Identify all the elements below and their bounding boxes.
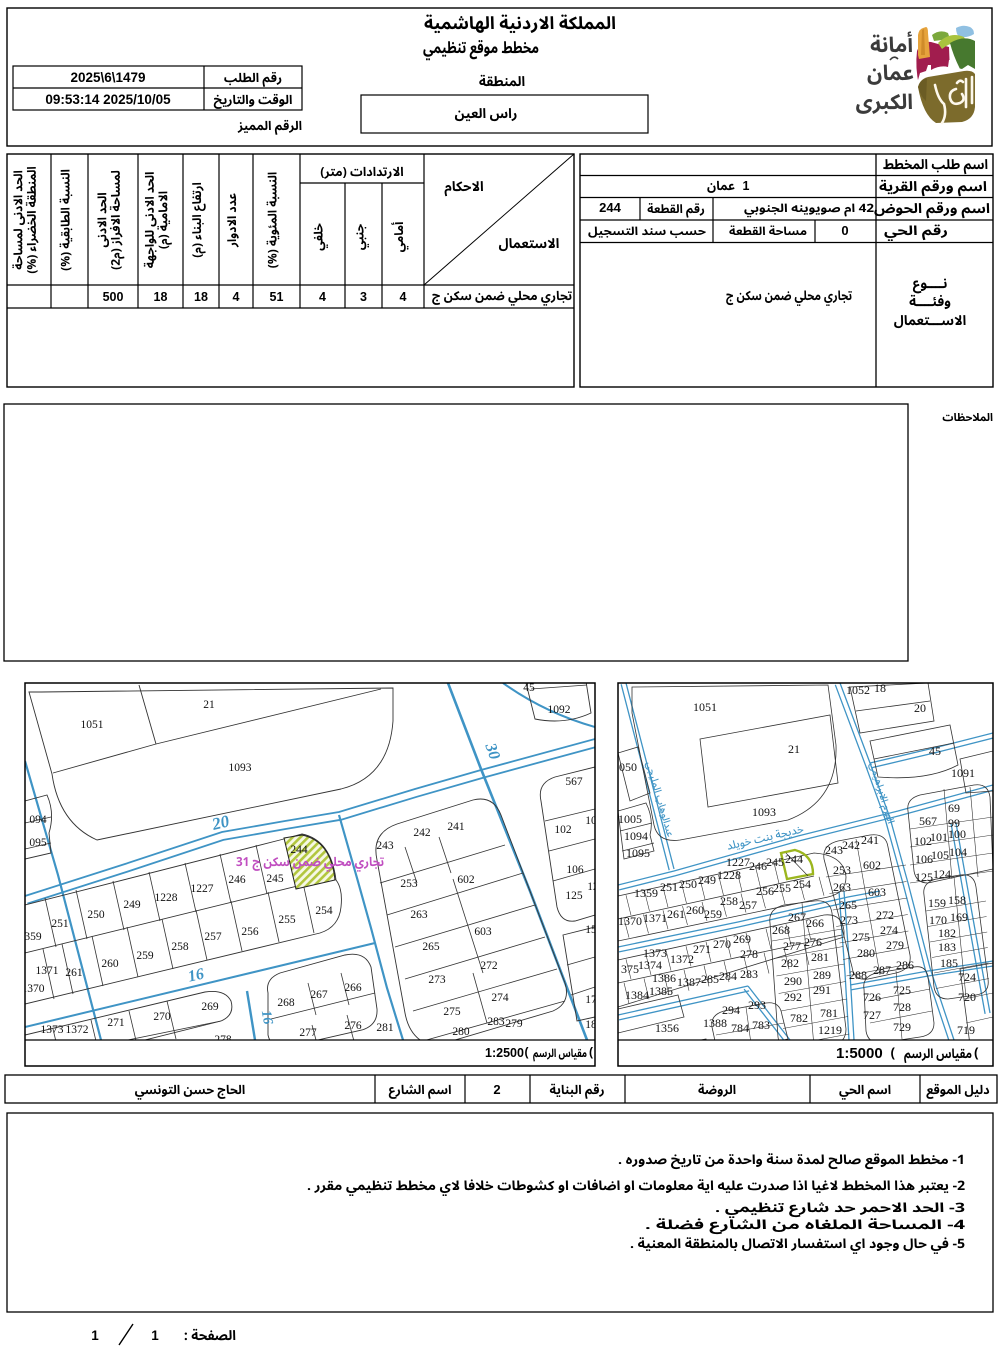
svg-text:3: 3 [360,290,367,304]
svg-text:276: 276 [344,1020,362,1032]
svg-text:265: 265 [422,941,440,953]
svg-text:1386: 1386 [652,971,676,985]
svg-text:242: 242 [842,838,860,852]
svg-text:285: 285 [701,972,719,986]
svg-text:277: 277 [783,939,801,953]
svg-text:4: 4 [400,290,407,304]
svg-text:250: 250 [87,909,105,921]
svg-text:781: 781 [820,1006,838,1020]
svg-text:287: 287 [873,963,891,977]
svg-text:159: 159 [928,896,946,910]
svg-text:243: 243 [376,840,394,852]
svg-text:(: ( [525,1045,529,1059]
svg-text:275: 275 [852,930,870,944]
svg-text:(: ( [891,1045,896,1060]
svg-text:244: 244 [290,844,308,856]
svg-text:263: 263 [833,880,851,894]
svg-text:288: 288 [849,968,867,982]
svg-text:268: 268 [277,997,295,1009]
svg-text:251: 251 [51,918,69,930]
svg-text:1370: 1370 [618,914,642,928]
svg-text:1: 1 [743,179,750,193]
svg-text:500: 500 [103,290,124,304]
svg-text:255: 255 [278,914,296,926]
svg-text:375: 375 [621,962,639,976]
svg-text:249: 249 [698,873,716,887]
svg-text:1372: 1372 [66,1024,89,1036]
svg-text:283: 283 [487,1016,505,1028]
svg-text:1091: 1091 [951,766,975,780]
svg-text:289: 289 [813,968,831,982]
svg-text:266: 266 [806,916,824,930]
svg-text:2025\6\1479: 2025\6\1479 [70,70,145,85]
svg-text:269: 269 [733,932,751,946]
svg-text:253: 253 [833,863,851,877]
svg-text:21: 21 [788,742,800,756]
svg-text:261: 261 [65,967,83,979]
svg-text:271: 271 [107,1017,125,1029]
svg-text:246: 246 [749,859,767,873]
svg-text:272: 272 [876,908,894,922]
svg-text:257: 257 [204,931,222,943]
svg-text:359: 359 [24,931,42,943]
svg-text:603: 603 [868,885,886,899]
svg-text:69: 69 [948,801,960,815]
svg-text:720: 720 [958,990,976,1004]
svg-text:101: 101 [930,830,948,844]
svg-text:0: 0 [841,223,848,238]
svg-text:106: 106 [566,864,584,876]
svg-text:258: 258 [720,894,738,908]
svg-text:270: 270 [713,937,731,951]
svg-text:18: 18 [154,290,168,304]
svg-text:254: 254 [315,905,333,917]
svg-text:293: 293 [748,998,766,1012]
svg-text:2: 2 [493,1082,500,1097]
svg-text:260: 260 [686,903,704,917]
svg-text:1093: 1093 [229,762,252,774]
svg-text:1093: 1093 [752,805,776,819]
svg-text:1219: 1219 [818,1023,842,1037]
svg-text:18: 18 [194,290,208,304]
svg-text:259: 259 [704,907,722,921]
svg-text:246: 246 [228,874,246,886]
svg-text:254: 254 [793,877,811,891]
svg-text:255: 255 [773,881,791,895]
svg-text:158: 158 [948,893,966,907]
svg-text:243: 243 [825,843,843,857]
svg-text:290: 290 [784,974,802,988]
svg-text:256: 256 [241,926,259,938]
svg-text:1051: 1051 [693,700,717,714]
svg-text:050: 050 [619,760,637,774]
svg-text:278: 278 [740,947,758,961]
svg-text:260: 260 [101,958,119,970]
svg-text:275: 275 [443,1006,461,1018]
svg-text:1005: 1005 [618,812,642,826]
svg-text:1052: 1052 [846,683,870,697]
svg-text:241: 241 [861,833,879,847]
svg-text:292: 292 [784,990,802,1004]
svg-text:170: 170 [929,913,947,927]
svg-text:(: ( [589,1045,593,1059]
svg-text:269: 269 [201,1001,219,1013]
svg-text:1384: 1384 [625,988,649,1002]
svg-text:268: 268 [772,923,790,937]
svg-text:095: 095 [29,837,47,849]
svg-text:241: 241 [447,821,465,833]
svg-text:45: 45 [929,744,941,758]
svg-text:1374: 1374 [638,958,662,972]
svg-text:261: 261 [667,907,685,921]
svg-text:1388: 1388 [703,1016,727,1030]
svg-text:1371: 1371 [643,911,667,925]
svg-text:1: 1 [151,1328,159,1343]
svg-text:244: 244 [599,200,621,215]
svg-text:1228: 1228 [717,868,741,882]
svg-text:603: 603 [474,926,492,938]
svg-text:251: 251 [660,880,678,894]
svg-text:1051: 1051 [81,719,104,731]
svg-text:124: 124 [933,867,951,881]
svg-text:1359: 1359 [634,886,658,900]
svg-text:286: 286 [896,958,914,972]
svg-text:267: 267 [310,989,328,1001]
svg-text:567: 567 [565,776,583,788]
svg-text:276: 276 [804,935,822,949]
svg-text:1228: 1228 [155,892,178,904]
svg-text:1371: 1371 [36,965,59,977]
svg-text:245: 245 [766,855,784,869]
svg-text:725: 725 [893,983,911,997]
svg-text:45: 45 [523,682,535,694]
svg-text:727: 727 [863,1008,881,1022]
svg-text:257: 257 [739,898,757,912]
svg-text:1094: 1094 [624,829,648,843]
svg-text:273: 273 [840,913,858,927]
svg-text:270: 270 [153,1011,171,1023]
svg-text:284: 284 [719,969,737,983]
svg-text:1:2500: 1:2500 [485,1046,524,1060]
svg-text:105: 105 [931,848,949,862]
svg-text:20: 20 [914,701,926,715]
svg-text:100: 100 [948,827,966,841]
svg-text:279: 279 [886,938,904,952]
svg-text:1373: 1373 [41,1024,64,1036]
svg-text:728: 728 [893,1000,911,1014]
svg-text:1356: 1356 [655,1021,679,1035]
svg-text:253: 253 [400,878,418,890]
svg-text:249: 249 [123,899,141,911]
svg-text:1385: 1385 [649,984,673,998]
svg-text:259: 259 [136,950,154,962]
svg-text:291: 291 [813,983,831,997]
svg-text:21: 21 [203,699,215,711]
svg-text:245: 245 [266,873,284,885]
svg-text:104: 104 [949,845,967,859]
svg-text:266: 266 [344,982,362,994]
svg-text:282: 282 [781,956,799,970]
svg-text:1: 1 [91,1328,99,1343]
svg-text:784: 784 [731,1021,749,1035]
svg-text:294: 294 [722,1003,740,1017]
svg-text:1092: 1092 [548,704,571,716]
svg-text:(: ( [974,1045,979,1060]
svg-text:283: 283 [740,967,758,981]
svg-text:567: 567 [919,814,937,828]
svg-text:244: 244 [785,852,803,866]
svg-text:09:53:14 2025/10/05: 09:53:14 2025/10/05 [45,92,171,107]
svg-text:1227: 1227 [191,883,214,895]
svg-text:258: 258 [171,941,189,953]
svg-text:185: 185 [940,956,958,970]
svg-text:280: 280 [857,946,875,960]
svg-text:602: 602 [457,874,475,886]
svg-text:125: 125 [915,870,933,884]
svg-text:242: 242 [413,827,431,839]
svg-text:250: 250 [679,877,697,891]
svg-text:102: 102 [554,824,572,836]
svg-text:1227: 1227 [726,855,750,869]
svg-text:280: 280 [452,1026,470,1038]
svg-text:1:5000: 1:5000 [836,1045,883,1062]
svg-text:4: 4 [233,290,240,304]
svg-text:183: 183 [938,940,956,954]
svg-text:169: 169 [950,910,968,924]
svg-text:273: 273 [428,974,446,986]
svg-text:265: 265 [839,898,857,912]
svg-text:719: 719 [957,1023,975,1037]
svg-text:726: 726 [863,990,881,1004]
svg-text:16: 16 [258,1009,275,1025]
svg-text:267: 267 [788,910,806,924]
svg-text:724: 724 [958,970,976,984]
svg-text:281: 281 [811,950,829,964]
svg-text:274: 274 [880,923,898,937]
svg-text:602: 602 [863,858,881,872]
svg-text:729: 729 [893,1020,911,1034]
svg-text:256: 256 [756,884,774,898]
svg-text:271: 271 [693,942,711,956]
svg-text:51: 51 [270,290,284,304]
svg-text:783: 783 [752,1018,770,1032]
svg-text:274: 274 [491,992,509,1004]
svg-text:1372: 1372 [670,952,694,966]
svg-text:782: 782 [790,1011,808,1025]
svg-text:277: 277 [299,1027,317,1039]
svg-text:125: 125 [565,890,583,902]
svg-text:182: 182 [938,926,956,940]
svg-text:094: 094 [29,814,47,826]
svg-text:272: 272 [480,960,498,972]
svg-text:1095: 1095 [626,846,650,860]
svg-text:4: 4 [319,290,326,304]
svg-text:281: 281 [376,1022,394,1034]
svg-text:263: 263 [410,909,428,921]
svg-text:279: 279 [505,1018,523,1030]
svg-text:1387: 1387 [677,975,701,989]
